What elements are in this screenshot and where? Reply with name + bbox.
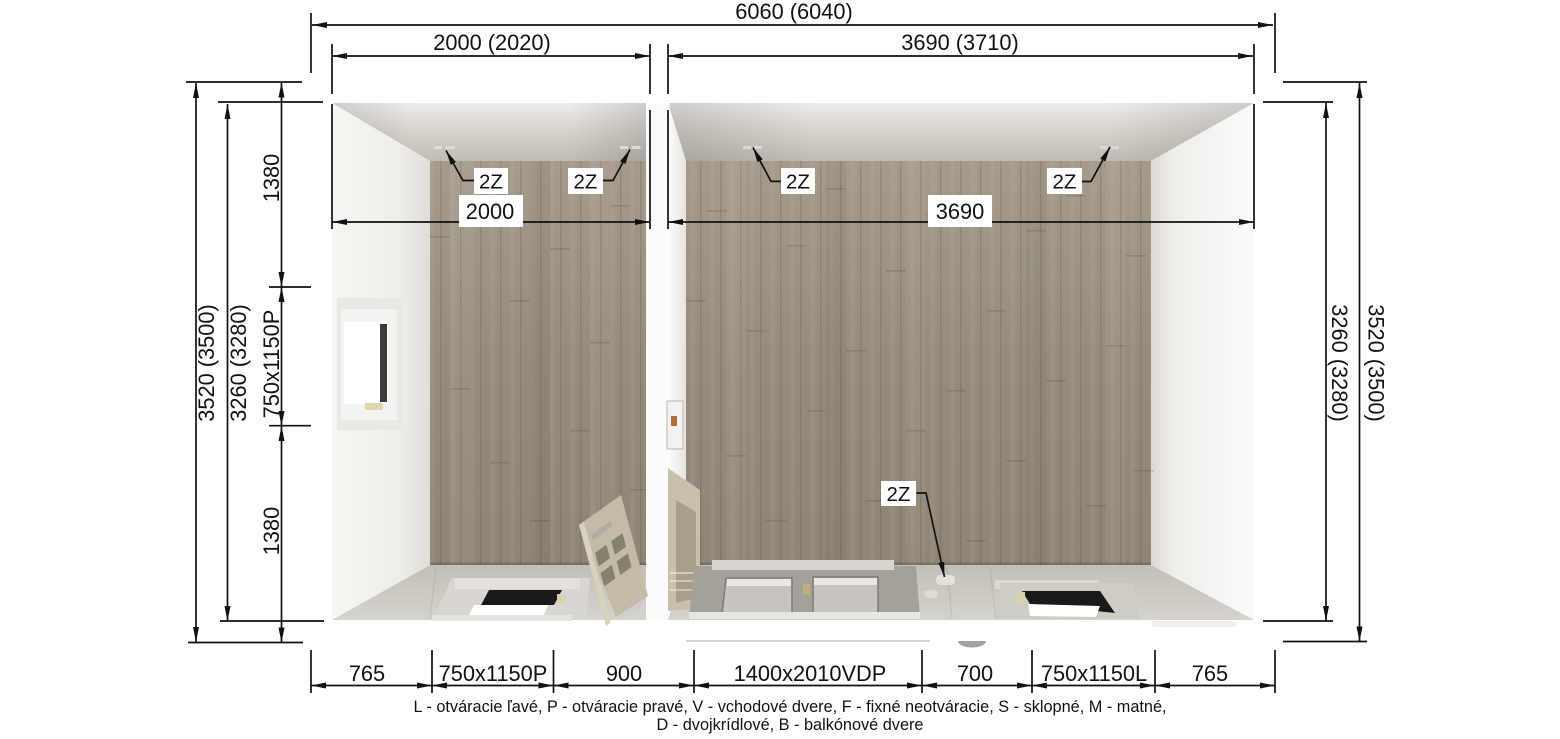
- svg-text:3690: 3690: [936, 199, 985, 224]
- svg-text:900: 900: [606, 661, 642, 686]
- svg-text:700: 700: [957, 661, 993, 686]
- svg-text:3690 (3710): 3690 (3710): [901, 30, 1019, 55]
- svg-text:2Z: 2Z: [479, 171, 503, 194]
- svg-text:750x1150P: 750x1150P: [439, 661, 548, 686]
- svg-text:6060 (6040): 6060 (6040): [735, 0, 853, 24]
- svg-text:2Z: 2Z: [574, 171, 598, 194]
- svg-text:765: 765: [1192, 661, 1228, 686]
- svg-text:D - dvojkrídlové, B - balkónov: D - dvojkrídlové, B - balkónové dvere: [657, 716, 924, 734]
- svg-text:3260 (3280): 3260 (3280): [226, 304, 251, 422]
- svg-text:1380: 1380: [259, 154, 284, 203]
- svg-text:1400x2010VDP: 1400x2010VDP: [734, 661, 887, 686]
- svg-text:2Z: 2Z: [887, 483, 911, 506]
- svg-text:3520 (3500): 3520 (3500): [194, 304, 219, 422]
- svg-text:2Z: 2Z: [1053, 171, 1077, 194]
- svg-text:2000 (2020): 2000 (2020): [433, 30, 551, 55]
- svg-text:2Z: 2Z: [786, 171, 810, 194]
- svg-text:1380: 1380: [259, 507, 284, 556]
- svg-text:750x1150L: 750x1150L: [1041, 661, 1147, 686]
- svg-text:3520 (3500): 3520 (3500): [1364, 304, 1389, 422]
- svg-text:L - otváracie ľavé, P - otvára: L - otváracie ľavé, P - otváracie pravé,…: [413, 698, 1166, 716]
- svg-text:765: 765: [349, 661, 385, 686]
- svg-text:3260 (3280): 3260 (3280): [1327, 304, 1352, 422]
- svg-text:2000: 2000: [466, 199, 515, 224]
- svg-text:750x1150P: 750x1150P: [259, 310, 284, 419]
